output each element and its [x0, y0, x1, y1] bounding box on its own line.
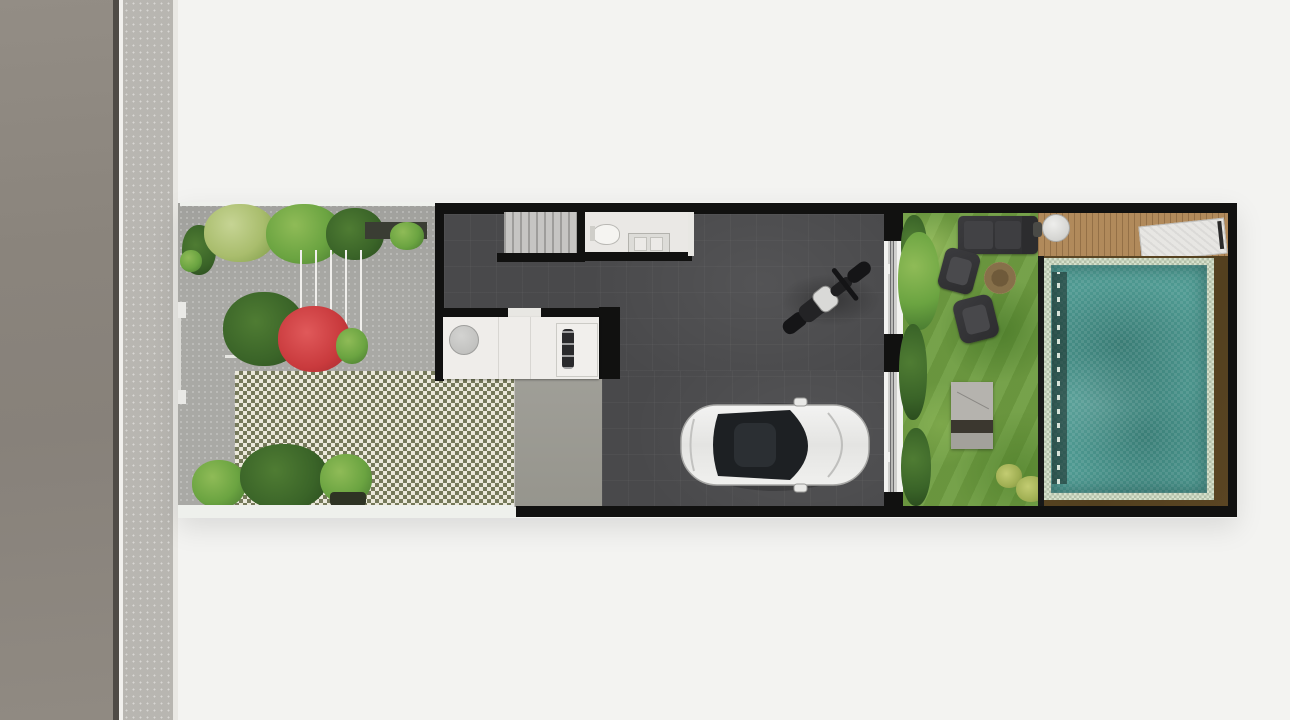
kitchen-side-wall	[599, 307, 620, 379]
counter-seam	[530, 317, 531, 379]
kitchen-door-opening	[508, 308, 541, 317]
dark-hedge-strip	[330, 492, 366, 506]
toilet	[592, 224, 620, 245]
bush	[180, 250, 202, 272]
counter-seam	[498, 317, 499, 379]
pool-water	[1051, 265, 1207, 493]
fire-pit	[984, 262, 1016, 294]
site-plan-scene	[0, 0, 1290, 720]
car-roof-panel	[734, 423, 776, 467]
palm-plant	[192, 460, 246, 508]
vanity-door	[634, 237, 647, 251]
vanity-door	[650, 237, 663, 251]
glass-wall-post-top	[884, 203, 903, 241]
gate-line	[178, 318, 181, 390]
outdoor-sofa	[958, 216, 1038, 254]
pool-ladder-line	[1057, 272, 1060, 484]
bench-lower	[951, 433, 993, 449]
garden-bench	[951, 382, 993, 449]
armchair-seat	[961, 303, 991, 335]
round-sink-table	[449, 325, 479, 355]
gate-post	[178, 302, 186, 318]
pool-shade-band	[1052, 272, 1067, 484]
palm-plant	[240, 444, 328, 510]
lot-bottom-edge	[178, 505, 518, 518]
stair-bath-divider	[577, 212, 585, 262]
carport-apron	[514, 371, 603, 507]
bush	[390, 222, 424, 250]
cooktop	[562, 329, 574, 369]
round-side-table	[1042, 214, 1070, 242]
toilet-tank	[590, 226, 595, 241]
side-mirror	[794, 484, 807, 492]
site-plan	[178, 202, 1237, 518]
stair-wall	[497, 253, 585, 262]
bathroom-wall	[585, 252, 692, 261]
glass-door-handle	[886, 264, 890, 274]
motorcycle-body	[773, 249, 883, 347]
wall-right-boundary	[1228, 203, 1237, 517]
garden-tree	[898, 232, 940, 330]
glass-door-handle	[886, 452, 890, 462]
sofa-cushion	[964, 221, 993, 249]
side-mirror	[794, 398, 807, 406]
motorcycle	[776, 252, 881, 347]
glass-wall-post-bottom	[884, 492, 903, 517]
deck-dark-object	[1033, 222, 1042, 237]
lounger-end-bar	[1217, 221, 1224, 249]
staircase	[504, 212, 578, 255]
bench-line	[957, 392, 989, 410]
round-bush	[336, 328, 368, 364]
sidewalk	[123, 0, 173, 720]
car	[678, 397, 872, 493]
armchair-seat	[945, 256, 973, 287]
sofa-cushion	[995, 221, 1021, 249]
wall-bottom	[516, 506, 1237, 517]
bench-dark-band	[951, 420, 993, 433]
hedge	[899, 324, 927, 420]
gate-post	[178, 390, 186, 404]
road	[0, 0, 116, 720]
bathroom-door-jamb	[688, 212, 694, 256]
hedge	[901, 428, 931, 506]
